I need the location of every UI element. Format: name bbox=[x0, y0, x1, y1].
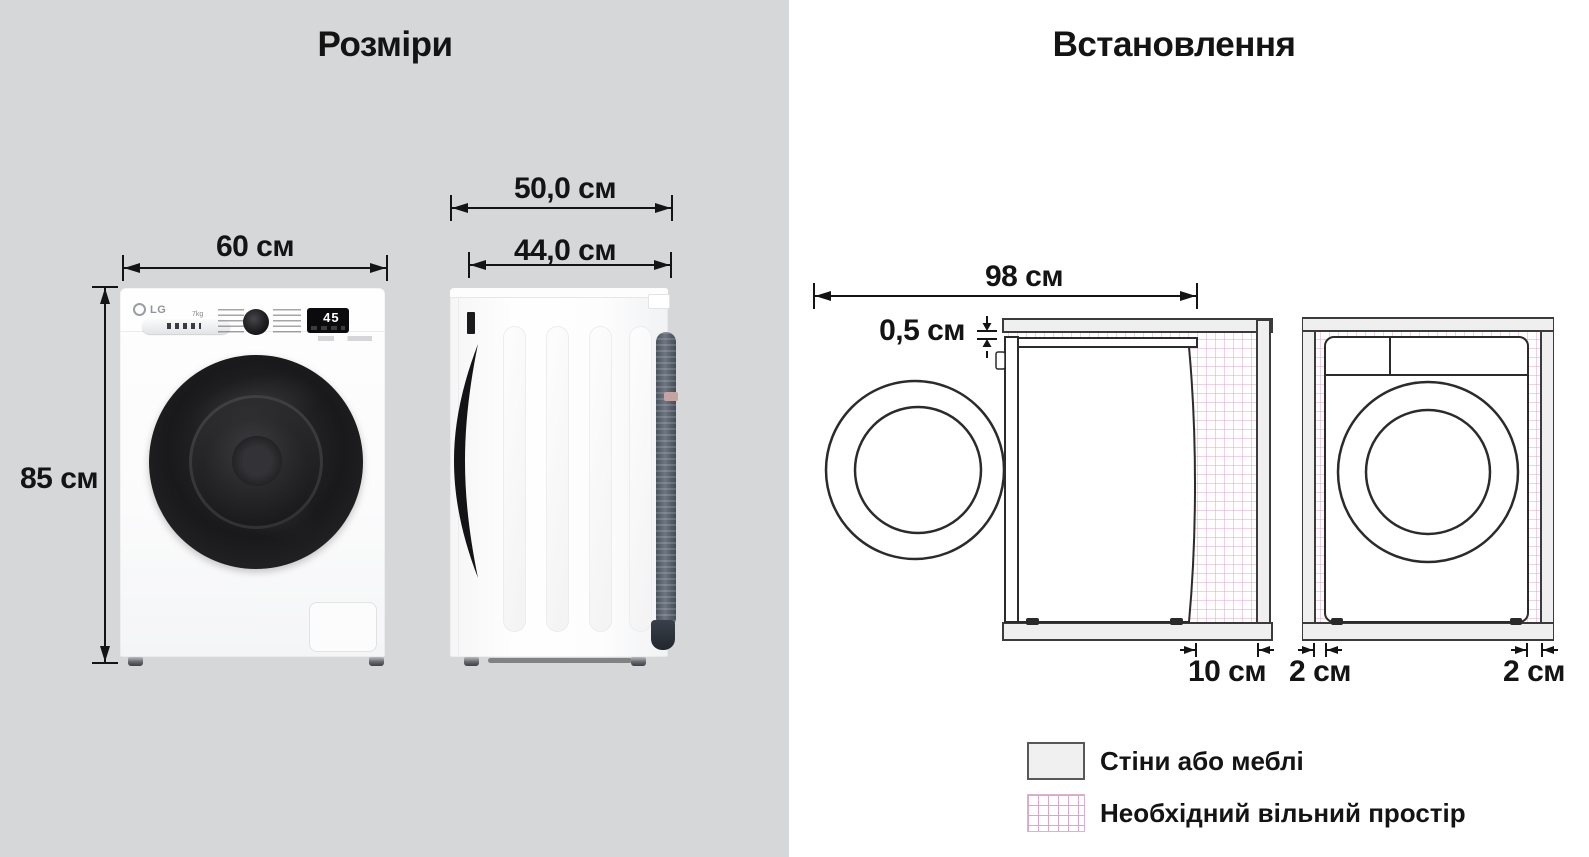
badge-logos bbox=[318, 336, 372, 341]
program-list-left bbox=[218, 309, 244, 335]
side-groove bbox=[589, 326, 612, 632]
display-value: 45 bbox=[323, 310, 339, 325]
foot bbox=[369, 657, 384, 666]
wall-left bbox=[1302, 331, 1315, 623]
open-door-inner bbox=[855, 407, 981, 533]
side-install-diagram bbox=[810, 312, 1280, 648]
dimensions-title: Розміри bbox=[0, 25, 770, 65]
machine-foot bbox=[1026, 618, 1039, 625]
program-knob bbox=[243, 309, 269, 335]
washer-front-view: LG 7kg 45 bbox=[120, 288, 385, 666]
side-depth-total-arrow bbox=[450, 195, 673, 221]
side-groove bbox=[546, 326, 569, 632]
machine-foot bbox=[1510, 618, 1522, 625]
walls-swatch bbox=[1027, 742, 1085, 780]
top-lid bbox=[450, 288, 668, 298]
installation-title: Встановлення bbox=[789, 25, 1559, 65]
door bbox=[149, 355, 363, 569]
install-depth-arrow bbox=[813, 283, 1198, 309]
wall-bottom bbox=[1302, 623, 1554, 640]
door-hinge bbox=[996, 352, 1005, 369]
machine-foot bbox=[1331, 618, 1343, 625]
wall-top bbox=[1003, 319, 1272, 332]
rear-tab bbox=[648, 294, 670, 309]
foot bbox=[128, 657, 143, 666]
front-height-label: 85 см bbox=[20, 462, 100, 496]
front-height-arrow bbox=[92, 286, 118, 664]
lg-logo: LG bbox=[133, 303, 166, 316]
front-width-arrow bbox=[122, 255, 388, 281]
wall-top bbox=[1302, 318, 1554, 331]
side-depth-body-arrow bbox=[468, 252, 672, 278]
washer-infographic: Розміри 60 см 85 см 50,0 см 44,0 см LG bbox=[0, 0, 1589, 857]
washer-side-body bbox=[450, 288, 668, 657]
hose-elbow bbox=[651, 620, 675, 650]
machine-body bbox=[1018, 347, 1195, 622]
side-groove bbox=[503, 326, 526, 632]
floor-shadow bbox=[488, 658, 632, 663]
machine-foot bbox=[1170, 618, 1183, 625]
front-install-diagram bbox=[1302, 312, 1554, 648]
hose-clip bbox=[664, 392, 678, 401]
detergent-drawer bbox=[142, 319, 230, 334]
drawer-vents-icon bbox=[167, 323, 201, 329]
foot bbox=[631, 657, 646, 666]
machine-front-panel bbox=[1005, 337, 1018, 622]
walls-legend-label: Стіни або меблі bbox=[1100, 742, 1304, 780]
foot bbox=[464, 657, 479, 666]
drain-hose bbox=[656, 332, 676, 628]
service-hatch bbox=[309, 602, 377, 652]
wall-bottom bbox=[1003, 623, 1272, 640]
capacity-label: 7kg bbox=[192, 311, 203, 318]
free-space-legend-label: Необхідний вільний простір bbox=[1100, 794, 1466, 832]
washer-front-body: LG 7kg 45 bbox=[120, 288, 385, 657]
left-clearance-label: 2 см bbox=[1260, 655, 1380, 689]
door-inner bbox=[1366, 410, 1490, 534]
right-clearance-label: 2 см bbox=[1479, 655, 1589, 689]
washer-side-view bbox=[450, 288, 685, 666]
display-buttons bbox=[311, 326, 345, 330]
display: 45 bbox=[307, 308, 349, 333]
installation-section: Встановлення 98 см 0,5 см bbox=[789, 0, 1589, 857]
side-groove bbox=[629, 326, 652, 632]
wall-right bbox=[1541, 331, 1554, 623]
hinge-mark bbox=[467, 312, 475, 334]
lg-logo-text: LG bbox=[150, 304, 166, 316]
dimensions-section: Розміри 60 см 85 см 50,0 см 44,0 см LG bbox=[0, 0, 789, 857]
free-space-swatch bbox=[1027, 794, 1085, 832]
lg-logo-icon bbox=[133, 303, 146, 316]
program-list-right bbox=[273, 309, 301, 335]
wall-right bbox=[1257, 320, 1270, 623]
drum-center bbox=[232, 436, 281, 485]
machine-lid bbox=[1018, 338, 1197, 347]
door-bulge bbox=[453, 344, 481, 578]
